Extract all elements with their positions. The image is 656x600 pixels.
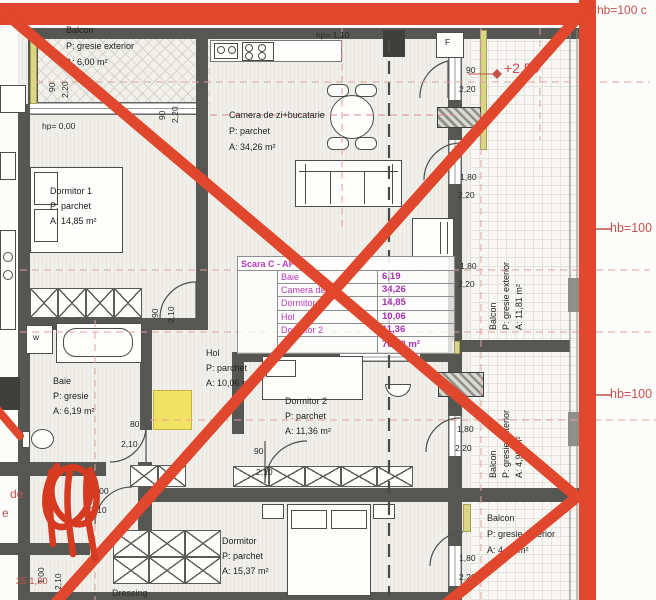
hb-label-low: hb=100: [610, 387, 652, 401]
dimension-label: 1,80: [460, 172, 477, 182]
table-row: Camera de zi 34,26: [278, 284, 455, 297]
dimension-label: 2,20: [170, 106, 180, 123]
dimension-label: 2,20: [458, 190, 475, 200]
area-cell: 34,26: [378, 284, 455, 297]
sofa-armrest-line: [392, 164, 393, 204]
room-cell: Hol: [278, 311, 378, 324]
washer-label: w: [33, 332, 39, 342]
sink-bowl: [228, 46, 236, 54]
wardrobe: [149, 557, 185, 584]
wardrobe: [30, 288, 58, 318]
washing-machine: [26, 325, 53, 354]
neighbour-stove: [0, 152, 16, 180]
dimension-label: 2,10: [256, 467, 273, 477]
hp-label: hp= 1,10: [316, 30, 349, 40]
room-label-living: Camera de zi+bucatarieP: parchetA: 34,26…: [229, 107, 325, 155]
dimension-label: 90: [157, 111, 167, 120]
dimension-label: 2,20: [458, 279, 475, 289]
room-cell: Dormitor 2: [278, 324, 378, 337]
wall: [150, 488, 584, 502]
total-empty-cell: [278, 337, 378, 354]
area-summary-table: Scara C - AP Baie 6,19 Camera de zi 34,2…: [237, 256, 455, 354]
wall: [0, 462, 106, 476]
wardrobe: [86, 288, 114, 318]
area-cell: 6,19: [378, 271, 455, 284]
hp-label: hp= 0,00: [42, 121, 75, 131]
room-cell: Camera de zi: [278, 284, 378, 297]
red-dimension-label: 25 1,80: [16, 576, 48, 587]
table-total-row: 76,72 m²: [278, 337, 455, 354]
sofa: [295, 160, 402, 207]
pillow: [331, 510, 367, 529]
chair: [355, 137, 377, 150]
nightstand: [262, 504, 284, 519]
wardrobe: [185, 557, 221, 584]
table-row: Baie 6,19: [278, 271, 455, 284]
shaft-hatch: [437, 107, 481, 128]
cut-off-red-text: e: [2, 506, 9, 520]
shaft: [383, 30, 405, 57]
sink-bowl: [217, 46, 225, 54]
hb-label-top: hb=100 c: [597, 3, 647, 17]
wardrobe: [377, 466, 413, 487]
wardrobe: [113, 557, 149, 584]
fridge-label: F: [445, 37, 450, 47]
neighbour-sink-bowl: [3, 270, 13, 280]
bathtub-basin: [63, 328, 133, 357]
room-label-dormitor2: Dormitor 2P: parchetA: 11,36 m²: [285, 394, 331, 439]
pillow: [266, 360, 296, 377]
wardrobe: [149, 530, 185, 557]
neighbour-counter: [0, 230, 16, 330]
dining-table: [330, 95, 374, 139]
burner: [258, 44, 266, 52]
room-label-balcon-jos: BalconP: gresie exteriorA: 4,47 m²: [487, 510, 555, 558]
dimension-label: 1,80: [460, 261, 477, 271]
dimension-label: 90: [150, 309, 160, 318]
area-table-title: Scara C - AP: [237, 256, 455, 271]
dimension-label: 2,10: [166, 306, 176, 323]
wardrobe: [185, 530, 221, 557]
room-label-dormitor-jos: DormitorP: parchetA: 15,37 m²: [222, 534, 269, 579]
burner: [258, 52, 266, 60]
area-cell: 10,06: [378, 311, 455, 324]
floor-plan-canvas: BalconP: gresie exteriorA: 6,00 m² Camer…: [0, 0, 656, 600]
toilet-bowl: [31, 429, 54, 449]
dimension-label: 1,80: [459, 553, 476, 563]
hb-label-mid: hb=100: [610, 221, 652, 235]
room-cell: Dormitor: [278, 297, 378, 310]
room-label-dormitor1: Dormitor 1P: parchetA: 14,85 m²: [50, 184, 97, 229]
chair: [327, 84, 349, 97]
railing-post: [568, 412, 579, 446]
total-area-cell: 76,72 m²: [378, 337, 455, 354]
area-table-left-cell: [237, 271, 278, 354]
insulation-strip: [30, 41, 37, 104]
dimension-label: 2,10: [121, 439, 138, 449]
wall: [18, 592, 458, 600]
insulation-strip: [463, 504, 471, 532]
dimension-label: 1,80: [457, 424, 474, 434]
sofa-back-line: [299, 171, 398, 172]
dimension-label: 2,10: [53, 573, 63, 590]
nightstand: [373, 504, 395, 519]
wardrobe: [58, 288, 86, 318]
wardrobe: [305, 466, 341, 487]
table-row: Hol 10,06: [278, 311, 455, 324]
armchair-line: [447, 222, 448, 254]
sofa-armrest-line: [305, 164, 306, 204]
neighbour-sink-bowl: [3, 252, 13, 262]
burner: [245, 52, 253, 60]
dimension-label: 2,20: [459, 572, 476, 582]
room-label-balcon-dreapta: BalconP: gresie exteriorA: 11,81 m²: [487, 262, 526, 330]
wardrobe: [113, 530, 149, 557]
dimension-label: 1,00: [92, 486, 109, 496]
burner: [245, 44, 253, 52]
shaft-hatch: [438, 372, 484, 397]
wardrobe: [269, 466, 305, 487]
wardrobe: [158, 465, 186, 487]
insulation-strip: [480, 30, 487, 150]
dimension-label: 2,10: [90, 505, 107, 515]
neighbour-fixture: [0, 85, 26, 113]
dimension-label: 80: [130, 419, 139, 429]
wall: [456, 340, 570, 352]
dimension-label: 2,20: [455, 443, 472, 453]
chair: [327, 137, 349, 150]
room-label-balcon-tl: BalconP: gresie exteriorA: 6,00 m²: [66, 22, 134, 70]
table-row: Dormitor 14,85: [278, 297, 455, 310]
sofa-cushion-line: [364, 171, 365, 204]
wall: [196, 39, 208, 330]
railing-post: [568, 278, 579, 312]
pillow: [291, 510, 327, 529]
level-label: +2,50: [504, 60, 539, 76]
dimension-label: 90: [254, 446, 263, 456]
wardrobe: [114, 288, 142, 318]
dimension-label: 2,20: [459, 84, 476, 94]
toilet-tank: [22, 431, 30, 448]
sofa-cushion-line: [330, 171, 331, 204]
armchair-line: [440, 222, 441, 254]
area-cell: 11,36: [378, 324, 455, 337]
room-label-balcon-mijloc: BalconP: gresie exteriorA: 4,90 m²: [487, 410, 526, 478]
highlight-square: [153, 390, 192, 430]
wardrobe: [341, 466, 377, 487]
dressing-label: Dressing: [112, 588, 148, 598]
cut-off-red-text: de: [10, 487, 23, 501]
window: [30, 102, 208, 115]
dimension-label: 90: [466, 65, 475, 75]
area-cell: 14,85: [378, 297, 455, 310]
dimension-label: 2,20: [60, 81, 70, 98]
room-label-baie: BaieP: gresieA: 6,19 m²: [53, 374, 95, 419]
table-row: Dormitor 2 11,36: [278, 324, 455, 337]
wardrobe: [130, 465, 158, 487]
wall: [0, 543, 90, 555]
wall: [0, 377, 20, 410]
dimension-label: 90: [47, 83, 57, 92]
chair: [355, 84, 377, 97]
room-cell: Baie: [278, 271, 378, 284]
